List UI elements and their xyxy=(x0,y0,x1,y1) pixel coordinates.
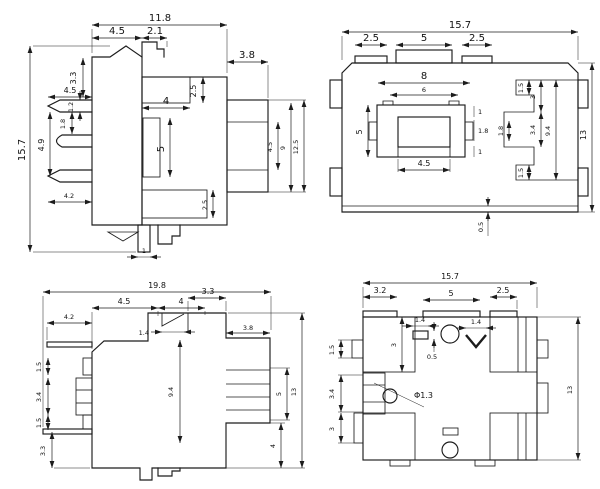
dim-label-right-b: 3 xyxy=(529,95,537,99)
dim-label-tab-right: 2.5 xyxy=(497,286,510,295)
pin-2 xyxy=(57,135,93,147)
dim-label-pin-bottom: 4.2 xyxy=(64,192,74,200)
dim-label-total-width: 15.7 xyxy=(449,20,471,31)
dim-label-button-width: 4.5 xyxy=(418,159,431,168)
dim-label-right-d: 3.4 xyxy=(529,125,537,135)
bot-tab-center xyxy=(423,311,480,317)
side-view: 11.8 4.5 2.1 3.8 15.7 3.3 4.5 1.2 1.8 4.… xyxy=(17,13,306,257)
dim-label-left-c: 1.5 xyxy=(35,418,43,428)
drawing-svg: 11.8 4.5 2.1 3.8 15.7 3.3 4.5 1.2 1.8 4.… xyxy=(0,0,600,489)
bot-tab-right xyxy=(490,311,517,317)
left-block xyxy=(76,378,92,415)
dim-label-total-height: 13 xyxy=(579,130,588,140)
left-contact-column xyxy=(363,373,385,414)
dim-label-top-c: 3.3 xyxy=(202,287,215,296)
dim-label-total-width: 11.8 xyxy=(149,13,171,24)
dim-label-pin-thickness: 1.2 xyxy=(67,102,75,112)
side-view-2: 19.8 4.2 4.5 4 3.3 1.4 1.5 3.4 1.5 3.3 9… xyxy=(35,281,305,480)
frame-step-right xyxy=(449,101,459,105)
bottom-hook xyxy=(158,225,180,244)
dim-label-recess-depth: 3 xyxy=(390,343,398,347)
side-body-outline xyxy=(92,46,142,225)
dim-label-right-f: 1.5 xyxy=(517,168,525,178)
left-wing-lower xyxy=(354,413,363,443)
dim-label-tab-right: 2.5 xyxy=(469,33,485,44)
top-tab-center xyxy=(396,50,452,63)
dim-label-left-d: 3.3 xyxy=(39,446,47,456)
top-wing-right-lower xyxy=(578,168,588,196)
dim-label-inner-height: 5 xyxy=(156,146,167,152)
dim-label-left-a: 1.5 xyxy=(35,362,43,372)
side-inner-rect-c xyxy=(142,190,207,218)
dim-label-lead-top: 4.2 xyxy=(64,313,74,321)
top-tab-left xyxy=(355,56,387,63)
dim-label-slot-width: 1.4 xyxy=(415,316,425,324)
lead-top xyxy=(47,342,92,347)
block-bottom-left xyxy=(363,413,415,460)
dim-label-left-a: 1.5 xyxy=(328,345,336,355)
dim-label-ext-a: 4.5 xyxy=(266,142,274,152)
center-hole-bottom xyxy=(442,442,458,458)
dim-label-ext-width: 3.8 xyxy=(243,324,253,332)
dim-label-hole-diameter: Φ1.3 xyxy=(414,391,433,400)
dim-label-total-height: 13 xyxy=(290,388,298,396)
dim-label-bottom-offset: 0.5 xyxy=(477,222,485,232)
dim-label-total-height: 15.7 xyxy=(17,139,28,161)
block-top-left xyxy=(363,317,415,372)
dim-label-right-a: 1.5 xyxy=(517,83,525,93)
dim-label-inner-width: 4 xyxy=(163,96,169,107)
dim-label-frame-height: 5 xyxy=(355,129,364,134)
lead-bottom xyxy=(43,429,92,434)
dim-label-pin-length: 4.5 xyxy=(64,86,77,95)
frame-tab-left xyxy=(369,122,377,140)
dim-label-inner-w2: 6 xyxy=(422,86,426,94)
dim-label-left-c: 3 xyxy=(328,427,336,431)
dim-label-top-b: 4 xyxy=(178,297,183,306)
dim-label-ext-c: 12.5 xyxy=(292,140,300,154)
top-wing-left-lower xyxy=(330,168,342,196)
top-view: 15.7 2.5 5 2.5 8 6 5 4.5 1 1.8 1 1.5 3 1… xyxy=(330,20,595,236)
dim-label-right-e: 9.4 xyxy=(544,126,552,136)
side-mid-slab xyxy=(142,77,227,225)
dim-label-inner-w1: 8 xyxy=(421,71,427,82)
button-strip xyxy=(398,147,450,157)
bottom-small-rect xyxy=(443,428,458,435)
bot-tab-left xyxy=(363,311,397,317)
dim-label-ext-b: 9 xyxy=(279,146,287,150)
side2-vnotch xyxy=(162,313,184,326)
dim-label-slot-offset: 0.5 xyxy=(427,353,437,361)
block-top-right xyxy=(490,317,537,372)
left-tab-lower xyxy=(83,415,92,429)
dim-label-total-width: 15.7 xyxy=(441,272,459,281)
dim-label-left-b: 3.4 xyxy=(35,392,43,402)
technical-drawing-canvas: 11.8 4.5 2.1 3.8 15.7 3.3 4.5 1.2 1.8 4.… xyxy=(0,0,600,489)
top-wing-right-upper xyxy=(578,80,588,108)
dim-label-step-top: 2.5 xyxy=(189,85,198,98)
dim-label-pin-height: 5 xyxy=(275,392,283,396)
side-hook-feature xyxy=(142,42,164,57)
dim-label-ext-width: 3.8 xyxy=(239,50,255,61)
bottom-foot-right xyxy=(475,460,495,466)
left-wing-upper xyxy=(352,340,363,358)
dim-label-top-b: 2.1 xyxy=(147,26,163,37)
top-tab-right xyxy=(462,56,492,63)
dim-label-tab-left: 2.5 xyxy=(363,33,379,44)
dim-label-notch2: 1.8 xyxy=(478,127,488,135)
dim-label-step-bottom: 2.5 xyxy=(201,200,209,210)
dim-label-bottom-height: 4 xyxy=(269,444,277,448)
dim-label-pin-pitch: 4.9 xyxy=(37,139,46,152)
dim-label-pin-gap: 1.8 xyxy=(59,119,67,129)
dim-label-pin-top: 3.3 xyxy=(69,72,78,85)
bottom-foot-left xyxy=(390,460,410,466)
dim-label-total-width: 19.8 xyxy=(148,281,166,290)
block-bottom-right xyxy=(490,413,537,460)
bottom-wedge xyxy=(108,232,138,241)
bottom-view: 15.7 3.2 5 2.5 1.4 0.5 1.4 3 Φ1.3 1.5 3.… xyxy=(328,272,581,466)
dim-label-tab-left: 3.2 xyxy=(374,286,387,295)
dim-label-notch3: 1 xyxy=(478,148,482,156)
dim-label-tab-center: 5 xyxy=(448,289,453,298)
dim-label-top-a: 4.5 xyxy=(109,26,125,37)
dim-label-chevron-width: 1.4 xyxy=(471,318,481,326)
side2-body-outline xyxy=(92,313,270,480)
dim-label-tab-center: 5 xyxy=(421,33,427,44)
top-wing-left-upper xyxy=(330,80,342,108)
dim-label-body-height: 9.4 xyxy=(167,387,175,397)
button-rect xyxy=(398,117,450,147)
dim-label-left-b: 3.4 xyxy=(328,389,336,399)
chevron-mark xyxy=(466,335,486,347)
side2-bottom-hook xyxy=(158,468,180,476)
pin-3 xyxy=(48,170,92,182)
side-ext-block xyxy=(227,100,268,192)
frame-tab-right xyxy=(465,122,473,140)
dim-label-top-a: 4.5 xyxy=(118,297,131,306)
dim-label-notch1: 1 xyxy=(478,108,482,116)
right-wing-upper xyxy=(537,340,548,358)
dim-label-right-c: 1.8 xyxy=(497,126,505,136)
left-tab-upper xyxy=(83,358,92,375)
right-wing-lower xyxy=(537,383,548,413)
dim-label-peg-width: 1 xyxy=(142,247,146,255)
dim-label-total-height: 13 xyxy=(566,386,574,394)
dim-label-notch-width: 1.4 xyxy=(139,329,149,337)
frame-step-left xyxy=(383,101,393,105)
inner-frame xyxy=(377,105,465,157)
